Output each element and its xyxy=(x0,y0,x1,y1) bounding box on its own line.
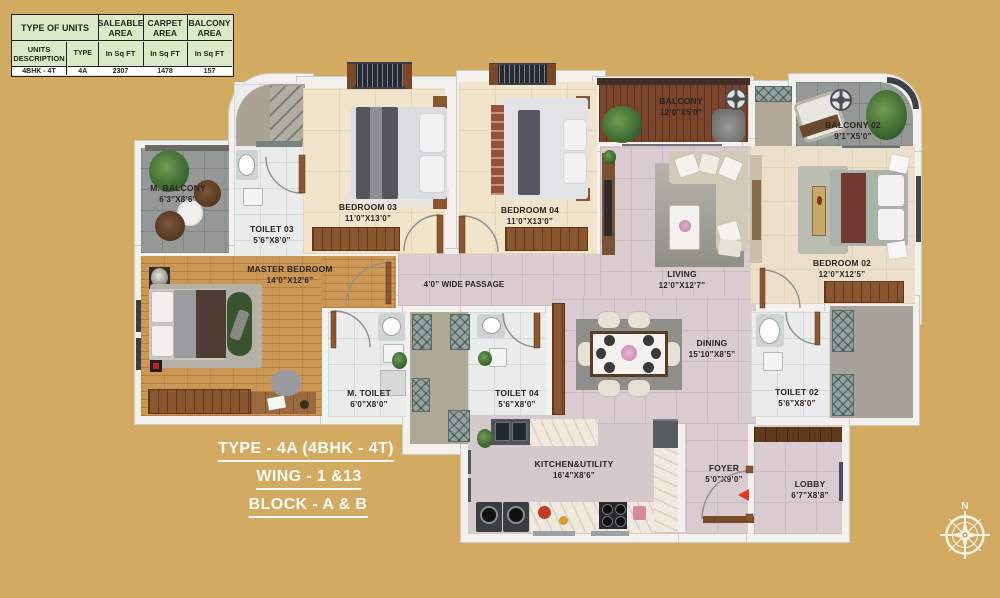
svg-text:N: N xyxy=(961,501,968,512)
